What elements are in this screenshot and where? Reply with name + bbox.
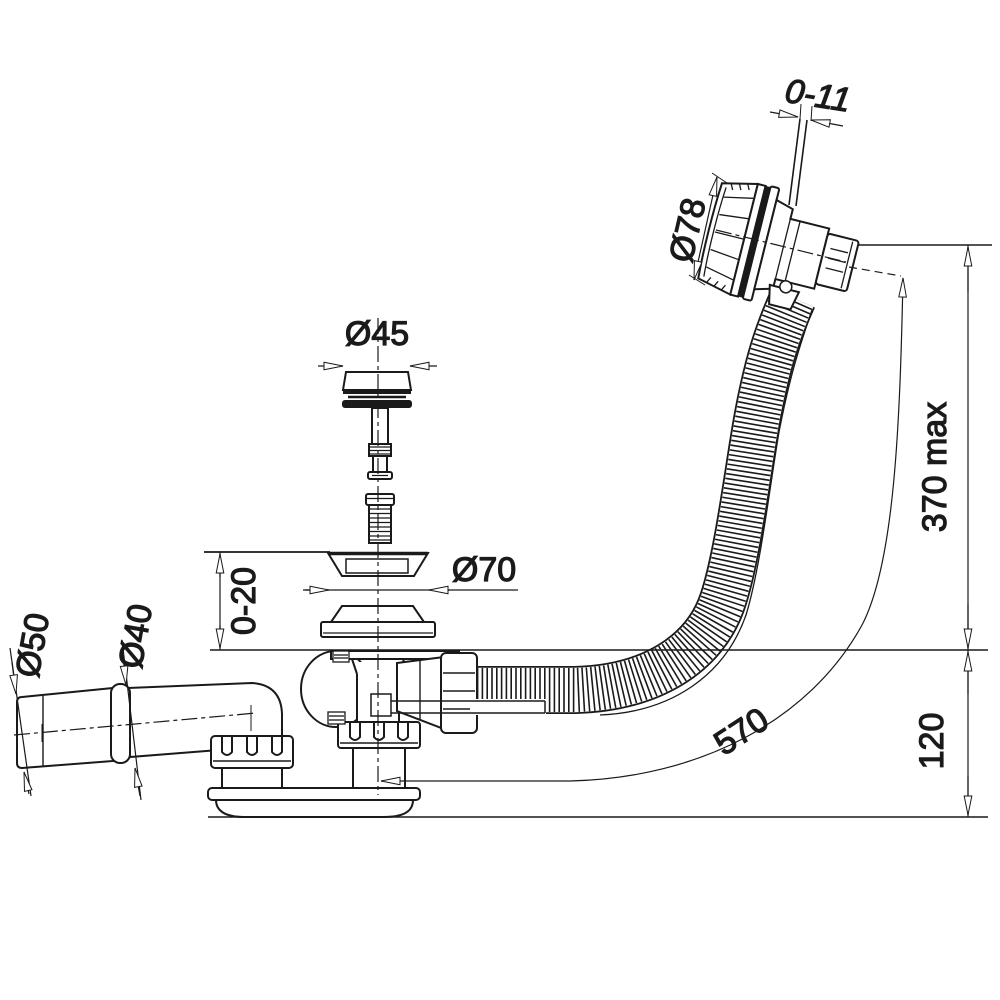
dim-label-plug-diameter: Ø45	[345, 315, 409, 353]
outlet-cone-seal	[17, 688, 113, 768]
dim-label-trap-depth: 120	[913, 713, 951, 770]
dim-label-flange-diameter: Ø70	[452, 551, 516, 589]
plug-cap	[343, 372, 411, 390]
drain-castellated-nut	[338, 722, 420, 748]
elbow-castellated-nut	[211, 736, 293, 768]
threaded-adapter	[366, 494, 394, 543]
technical-drawing-page: 0-11 Ø78 Ø45 Ø70 0-20	[0, 0, 1000, 1000]
bath-waste-overflow-drawing: 0-11 Ø78 Ø45 Ø70 0-20	[0, 0, 1000, 1000]
hose-union-nut	[441, 653, 477, 733]
plug-seal-ring	[342, 400, 412, 408]
outlet-pipe-collar	[111, 684, 130, 763]
plug-stem	[372, 408, 388, 445]
plug-guide	[371, 694, 391, 716]
drawing-background	[0, 0, 1000, 1000]
dim-label-max-overflow-height: 370 max	[916, 402, 954, 532]
trap-bowl	[208, 788, 420, 817]
dim-label-bath-panel-thickness: 0-20	[225, 567, 263, 635]
